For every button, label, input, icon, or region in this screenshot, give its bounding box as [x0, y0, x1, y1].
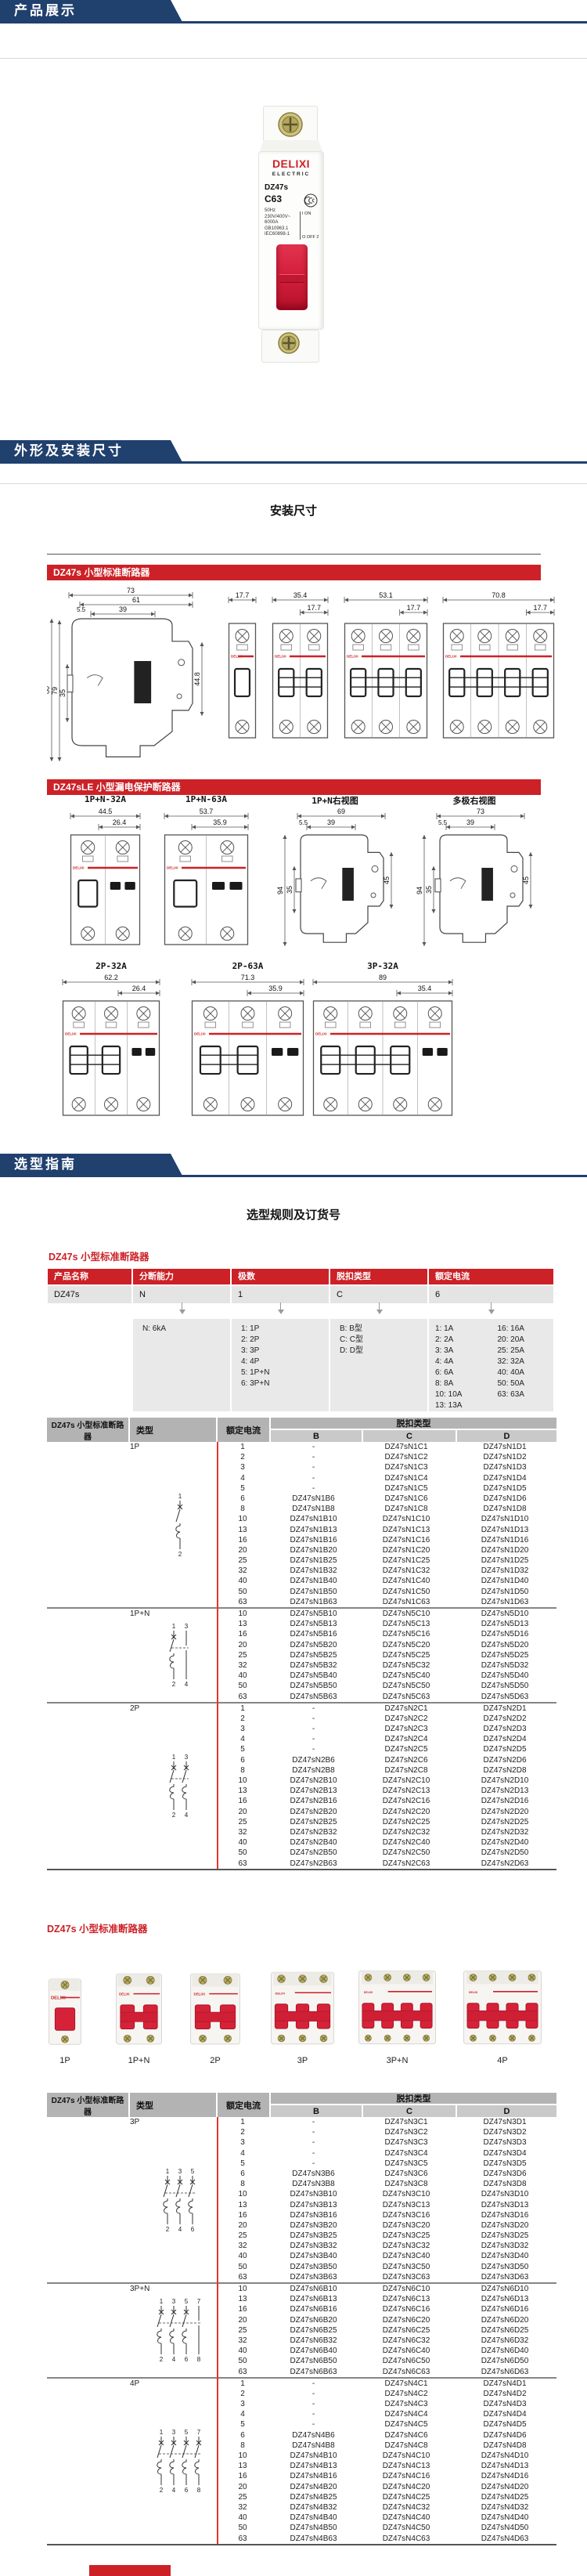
order-row: 8DZ47sN1B8DZ47sN1C8DZ47sN1D8: [218, 1504, 556, 1514]
order-row: 2-DZ47sN2C2DZ47sN2D2: [218, 1714, 556, 1724]
model-d: DZ47sN4D10: [453, 2451, 556, 2461]
svg-text:71.3: 71.3: [241, 974, 255, 981]
svg-text:8: 8: [197, 2487, 201, 2494]
svg-text:62.2: 62.2: [104, 974, 118, 981]
list-item: 6: 3P+N: [232, 1378, 329, 1389]
model-b: DZ47sN1B32: [268, 1566, 359, 1576]
order-row: 13DZ47sN1B13DZ47sN1C13DZ47sN1D13: [218, 1525, 556, 1535]
svg-text:DELIXI: DELIXI: [65, 1032, 77, 1036]
model-c: DZ47sN4C13: [359, 2461, 453, 2471]
next-section-banner-fragment: [89, 2565, 171, 2576]
rated-current: 4: [218, 2409, 268, 2419]
svg-text:DELIXI: DELIXI: [275, 1992, 285, 1995]
model-d: DZ47sN5D50: [453, 1681, 556, 1691]
model-c: DZ47sN3C3: [359, 2137, 453, 2148]
order-row: 50DZ47sN6B50DZ47sN6C50DZ47sN6D50: [218, 2356, 556, 2366]
rated-current: 1: [218, 1703, 268, 1714]
model-b: -: [268, 1724, 359, 1734]
model-d: DZ47sN3D3: [453, 2137, 556, 2148]
order-row: 6DZ47sN1B6DZ47sN1C6DZ47sN1D6: [218, 1494, 556, 1504]
model-d: DZ47sN1D20: [453, 1545, 556, 1555]
model-b: DZ47sN6B16: [268, 2304, 359, 2314]
list-item: D: D型: [330, 1346, 427, 1357]
order-row: 63DZ47sN1B63DZ47sN1C63DZ47sN1D63: [218, 1597, 556, 1607]
list-item: 2: 2A: [429, 1335, 492, 1346]
model-b: DZ47sN5B63: [268, 1692, 359, 1702]
model-b: -: [268, 1744, 359, 1754]
model-d: DZ47sN6D63: [453, 2367, 556, 2377]
model-d: DZ47sN3D2: [453, 2127, 556, 2137]
rated-current: 16: [218, 1796, 268, 1806]
svg-text:45: 45: [522, 876, 530, 884]
rated-current: 5: [218, 1744, 268, 1754]
model-c: DZ47sN5C50: [359, 1681, 453, 1691]
model-b: DZ47sN6B32: [268, 2336, 359, 2346]
order-section-2P: 2P12341-DZ47sN2C1DZ47sN2D12-DZ47sN2C2DZ4…: [47, 1702, 556, 1869]
model-c: DZ47sN3C32: [359, 2241, 453, 2251]
rated-current: 10: [218, 1514, 268, 1524]
svg-text:DELIXI: DELIXI: [167, 866, 178, 870]
model-c: DZ47sN4C25: [359, 2492, 453, 2502]
order-row: 16DZ47sN6B16DZ47sN6C16DZ47sN6D16: [218, 2304, 556, 2314]
model-c: DZ47sN2C10: [359, 1776, 453, 1786]
dz47sle-drawing-banner: DZ47sLE 小型漏电保护断路器: [47, 779, 541, 795]
rule-value-breaking-capacity: N: [133, 1286, 230, 1303]
order-row: 13DZ47sN5B13DZ47sN5C13DZ47sN5D13: [218, 1619, 556, 1629]
terminal-screw-icon: [264, 107, 317, 141]
order-col-b: B: [271, 1430, 362, 1442]
divider: [0, 58, 587, 59]
rated-current: 10: [218, 1609, 268, 1619]
rule-header-trip-type: 脱扣类型: [330, 1269, 427, 1284]
rated-current: 4: [218, 2148, 268, 2159]
order-row: 6DZ47sN4B6DZ47sN4C6DZ47sN4D6: [218, 2430, 556, 2441]
order-row: 1-DZ47sN2C1DZ47sN2D1: [218, 1703, 556, 1714]
svg-text:DELIXI: DELIXI: [315, 1032, 327, 1036]
svg-text:6: 6: [185, 2487, 189, 2494]
arrow-down-icon: [280, 1302, 281, 1313]
model-b: -: [268, 2137, 359, 2148]
rated-current: 10: [218, 2284, 268, 2294]
order-section-3P: 3P1234561-DZ47sN3C1DZ47sN3D12-DZ47sN3C2D…: [47, 2117, 556, 2282]
rated-current: 50: [218, 2356, 268, 2366]
dz47s-drawing-banner: DZ47s 小型标准断路器: [47, 565, 541, 580]
model-c: DZ47sN5C25: [359, 1650, 453, 1660]
svg-text:35: 35: [425, 886, 433, 894]
model-c: DZ47sN4C6: [359, 2430, 453, 2441]
model-b: DZ47sN2B50: [268, 1848, 359, 1858]
model-b: DZ47sN3B40: [268, 2251, 359, 2261]
rated-current: 25: [218, 1650, 268, 1660]
model-d: DZ47sN2D13: [453, 1786, 556, 1796]
svg-text:1: 1: [172, 1754, 176, 1761]
model-c: DZ47sN4C1: [359, 2379, 453, 2389]
model-d: DZ47sN2D10: [453, 1776, 556, 1786]
type-cell: 3P123456: [47, 2117, 218, 2282]
type-label: 4P: [130, 2379, 139, 2388]
model-b: DZ47sN2B32: [268, 1827, 359, 1837]
rated-current: 13: [218, 2461, 268, 2471]
rule-value-rated-current: 6: [429, 1286, 553, 1303]
drawing-label: 1P+N右视图: [282, 794, 388, 807]
order-row: 50DZ47sN1B50DZ47sN1C50DZ47sN1D50: [218, 1587, 556, 1597]
model-d: DZ47sN6D10: [453, 2284, 556, 2294]
list-item: 4: 4P: [232, 1357, 329, 1367]
rated-current: 40: [218, 1837, 268, 1848]
order-table-header: DZ47s 小型标准断路器类型额定电流脱扣类型BCD: [47, 1418, 556, 1442]
order-row: 16DZ47sN5B16DZ47sN5C16DZ47sN5D16: [218, 1629, 556, 1639]
svg-text:2: 2: [160, 2356, 164, 2363]
svg-text:2: 2: [178, 1551, 182, 1558]
list-item: C: C型: [330, 1335, 427, 1346]
model-c: DZ47sN3C8: [359, 2179, 453, 2189]
model-d: DZ47sN3D25: [453, 2231, 556, 2241]
model-d: DZ47sN1D8: [453, 1504, 556, 1514]
model-c: DZ47sN5C13: [359, 1619, 453, 1629]
model-b: DZ47sN3B50: [268, 2262, 359, 2272]
model-b: DZ47sN1B25: [268, 1555, 359, 1566]
model-c: DZ47sN6C16: [359, 2304, 453, 2314]
order-row: 63DZ47sN2B63DZ47sN2C63DZ47sN2D63: [218, 1859, 556, 1869]
rated-current: 40: [218, 1671, 268, 1681]
rated-current: 63: [218, 1692, 268, 1702]
rated-current: 5: [218, 2419, 268, 2430]
model-d: DZ47sN3D16: [453, 2210, 556, 2220]
model-c: DZ47sN2C5: [359, 1744, 453, 1754]
svg-text:53.1: 53.1: [379, 591, 393, 599]
model-c: DZ47sN2C63: [359, 1859, 453, 1869]
order-row: 8DZ47sN2B8DZ47sN2C8DZ47sN2D8: [218, 1765, 556, 1776]
svg-text:35: 35: [286, 886, 293, 894]
list-item: 3: 3A: [429, 1346, 492, 1357]
svg-text:7: 7: [197, 2429, 201, 2436]
order-section-1P+N: 1P+N123410DZ47sN5B10DZ47sN5C10DZ47sN5D10…: [47, 1607, 556, 1702]
model-b: DZ47sN1B10: [268, 1514, 359, 1524]
svg-text:DELIXI: DELIXI: [194, 1032, 206, 1036]
model-b: DZ47sN6B25: [268, 2325, 359, 2336]
model-d: DZ47sN3D13: [453, 2200, 556, 2210]
order-row: 40DZ47sN6B40DZ47sN6C40DZ47sN6D40: [218, 2346, 556, 2356]
rated-current: 25: [218, 1555, 268, 1566]
list-item: 10: 10A: [429, 1389, 492, 1400]
order-row: 63DZ47sN6B63DZ47sN6C63DZ47sN6D63: [218, 2367, 556, 2377]
section-banner-products: 产品展示: [0, 0, 587, 23]
svg-text:44.5: 44.5: [99, 807, 113, 815]
model-d: DZ47sN5D40: [453, 1671, 556, 1681]
breaker-photo: DELIXI: [190, 1969, 240, 2049]
order-row: 13DZ47sN3B13DZ47sN3C13DZ47sN3D13: [218, 2200, 556, 2210]
model-d: DZ47sN4D25: [453, 2492, 556, 2502]
model-d: DZ47sN5D20: [453, 1640, 556, 1650]
rated-current: 20: [218, 2482, 268, 2492]
model-d: DZ47sN3D1: [453, 2117, 556, 2127]
svg-text:73: 73: [477, 807, 484, 815]
model-c: DZ47sN2C32: [359, 1827, 453, 1837]
model-d: DZ47sN2D63: [453, 1859, 556, 1869]
model-c: DZ47sN2C6: [359, 1755, 453, 1765]
order-row: 4-DZ47sN2C4DZ47sN2D4: [218, 1734, 556, 1744]
order-row: 50DZ47sN4B50DZ47sN4C50DZ47sN4D50: [218, 2523, 556, 2533]
rated-current: 2: [218, 1452, 268, 1462]
order-row: 40DZ47sN5B40DZ47sN5C40DZ47sN5D40: [218, 1671, 556, 1681]
order-row: 13DZ47sN6B13DZ47sN6C13DZ47sN6D13: [218, 2294, 556, 2304]
rated-current: 32: [218, 2502, 268, 2513]
model-c: DZ47sN3C13: [359, 2200, 453, 2210]
svg-text:5: 5: [191, 2168, 195, 2175]
red-divider-line: [217, 1442, 218, 1869]
model-b: DZ47sN5B20: [268, 1640, 359, 1650]
model-c: DZ47sN3C16: [359, 2210, 453, 2220]
model-c: DZ47sN2C1: [359, 1703, 453, 1714]
order-col-type: 类型: [130, 2093, 216, 2117]
model-d: DZ47sN3D5: [453, 2159, 556, 2169]
type-label: 3P+N: [130, 2285, 149, 2293]
svg-text:5.5: 5.5: [77, 606, 86, 613]
svg-text:1: 1: [178, 1493, 182, 1500]
model-c: DZ47sN2C4: [359, 1734, 453, 1744]
rated-current: 10: [218, 2451, 268, 2461]
order-row: 25DZ47sN5B25DZ47sN5C25DZ47sN5D25: [218, 1650, 556, 1660]
order-col-product: DZ47s 小型标准断路器: [47, 1418, 128, 1442]
order-row: 1-DZ47sN4C1DZ47sN4D1: [218, 2379, 556, 2389]
order-col-product: DZ47s 小型标准断路器: [47, 2093, 128, 2117]
section-title-dimensions: 外形及安装尺寸: [14, 440, 124, 464]
model-c: DZ47sN6C40: [359, 2346, 453, 2356]
svg-text:94: 94: [416, 887, 423, 894]
rated-current: 4: [218, 1473, 268, 1483]
list-item: 4: 4A: [429, 1357, 492, 1367]
pole-circuit-symbol: 1234: [164, 1622, 196, 1688]
rated-current: 63: [218, 2272, 268, 2282]
order-row: 3-DZ47sN4C3DZ47sN4D3: [218, 2399, 556, 2409]
model-b: -: [268, 1473, 359, 1483]
model-d: DZ47sN1D3: [453, 1462, 556, 1472]
model-c: DZ47sN4C4: [359, 2409, 453, 2419]
order-row: 25DZ47sN1B25DZ47sN1C25DZ47sN1D25: [218, 1555, 556, 1566]
list-item: 1: 1A: [429, 1324, 492, 1335]
svg-text:73: 73: [127, 587, 135, 594]
order-row: 5-DZ47sN2C5DZ47sN2D5: [218, 1744, 556, 1754]
model-d: DZ47sN2D8: [453, 1765, 556, 1776]
model-d: DZ47sN2D3: [453, 1724, 556, 1734]
breaker-photo: DELIXI: [358, 1966, 436, 2049]
current-codes: 1: 1A2: 2A3: 3A4: 4A6: 6A8: 8A10: 10A13:…: [429, 1319, 553, 1411]
model-c: DZ47sN3C4: [359, 2148, 453, 2159]
list-item: 16: 16A: [492, 1324, 554, 1335]
order-row: 25DZ47sN6B25DZ47sN6C25DZ47sN6D25: [218, 2325, 556, 2336]
order-row: 2-DZ47sN4C2DZ47sN4D2: [218, 2389, 556, 2399]
rated-current: 40: [218, 2346, 268, 2356]
rule-value-trip-type: C: [330, 1286, 427, 1303]
model-c: DZ47sN3C2: [359, 2127, 453, 2137]
model-b: DZ47sN4B50: [268, 2523, 359, 2533]
rated-current: 4: [218, 1734, 268, 1744]
rated-current: 20: [218, 2315, 268, 2325]
rule-header-poles: 极数: [232, 1269, 329, 1284]
gallery-item-label: 3P: [271, 2056, 334, 2065]
dz47sle-dimension-drawings-row1: 44.526.4DELIXI53.735.9DELIXI695.53994354…: [47, 807, 556, 952]
model-b: -: [268, 2148, 359, 2159]
order-row: 20DZ47sN1B20DZ47sN1C20DZ47sN1D20: [218, 1545, 556, 1555]
svg-text:61: 61: [132, 596, 140, 604]
order-row: 13DZ47sN4B13DZ47sN4C13DZ47sN4D13: [218, 2461, 556, 2471]
model-c: DZ47sN3C1: [359, 2117, 453, 2127]
order-row: 20DZ47sN5B20DZ47sN5C20DZ47sN5D20: [218, 1640, 556, 1650]
model-c: DZ47sN2C8: [359, 1765, 453, 1776]
gallery-item-label: 4P: [463, 2056, 542, 2065]
order-row: 50DZ47sN5B50DZ47sN5C50DZ47sN5D50: [218, 1681, 556, 1691]
model-d: DZ47sN2D2: [453, 1714, 556, 1724]
rated-current: 13: [218, 1786, 268, 1796]
gallery-item-3P: DELIXI3P: [271, 1964, 334, 2065]
model-d: DZ47sN3D6: [453, 2169, 556, 2179]
model-d: DZ47sN4D5: [453, 2419, 556, 2430]
rated-current: 13: [218, 1619, 268, 1629]
svg-text:4: 4: [172, 2356, 176, 2363]
svg-text:45: 45: [383, 876, 391, 884]
order-row: 4-DZ47sN3C4DZ47sN3D4: [218, 2148, 556, 2159]
model-b: DZ47sN2B8: [268, 1765, 359, 1776]
model-d: DZ47sN1D40: [453, 1576, 556, 1586]
rated-current: 20: [218, 1807, 268, 1817]
model-d: DZ47sN6D32: [453, 2336, 556, 2346]
model-d: DZ47sN2D5: [453, 1744, 556, 1754]
order-col-c: C: [363, 1430, 456, 1442]
model-c: DZ47sN6C20: [359, 2315, 453, 2325]
rated-current: 20: [218, 1545, 268, 1555]
curve-rating-label: C63: [265, 193, 282, 204]
model-c: DZ47sN3C6: [359, 2169, 453, 2179]
model-b: DZ47sN6B63: [268, 2367, 359, 2377]
rated-current: 20: [218, 2220, 268, 2231]
svg-text:26.4: 26.4: [132, 985, 146, 992]
model-c: DZ47sN1C25: [359, 1555, 453, 1566]
model-c: DZ47sN4C3: [359, 2399, 453, 2409]
type-label: 2P: [130, 1704, 139, 1713]
order-section-3P+N: 3P+N1234567810DZ47sN6B10DZ47sN6C10DZ47sN…: [47, 2282, 556, 2377]
order-col-d: D: [457, 2105, 556, 2117]
rated-current: 1: [218, 1442, 268, 1452]
order-row: 5-DZ47sN1C5DZ47sN1D5: [218, 1483, 556, 1494]
svg-text:94: 94: [276, 887, 284, 894]
list-item: 3: 3P: [232, 1346, 329, 1357]
bottom-terminal: [261, 330, 319, 363]
model-c: DZ47sN2C3: [359, 1724, 453, 1734]
model-b: DZ47sN4B10: [268, 2451, 359, 2461]
rated-current: 6: [218, 2169, 268, 2179]
rated-current: 25: [218, 2325, 268, 2336]
order-row: 40DZ47sN2B40DZ47sN2C40DZ47sN2D40: [218, 1837, 556, 1848]
list-item: 50: 50A: [492, 1378, 554, 1389]
model-b: -: [268, 2379, 359, 2389]
model-d: DZ47sN5D16: [453, 1629, 556, 1639]
order-col-current: 额定电流: [218, 1418, 269, 1442]
rated-current: 25: [218, 2231, 268, 2241]
section-title-products: 产品展示: [14, 0, 77, 23]
model-c: DZ47sN4C5: [359, 2419, 453, 2430]
model-c: DZ47sN3C40: [359, 2251, 453, 2261]
pole-circuit-symbol: 123456: [157, 2167, 203, 2233]
list-item: 63: 63A: [492, 1389, 554, 1400]
model-b: DZ47sN4B6: [268, 2430, 359, 2441]
model-d: DZ47sN1D2: [453, 1452, 556, 1462]
section-banner-selection: 选型指南: [0, 1154, 587, 1177]
svg-text:DELIXI: DELIXI: [364, 1991, 373, 1994]
svg-text:69: 69: [337, 807, 345, 815]
on-label: I ON: [302, 211, 321, 216]
model-b: DZ47sN4B25: [268, 2492, 359, 2502]
model-b: -: [268, 1462, 359, 1472]
model-d: DZ47sN4D32: [453, 2502, 556, 2513]
model-c: DZ47sN5C40: [359, 1671, 453, 1681]
rated-current: 20: [218, 1640, 268, 1650]
rule-value-product-name: DZ47s: [48, 1286, 131, 1303]
rated-current: 50: [218, 1848, 268, 1858]
model-b: DZ47sN1B63: [268, 1597, 359, 1607]
order-row: 2-DZ47sN1C2DZ47sN1D2: [218, 1452, 556, 1462]
model-b: DZ47sN5B25: [268, 1650, 359, 1660]
order-row: 63DZ47sN5B63DZ47sN5C63DZ47sN5D63: [218, 1692, 556, 1702]
rule-header-product-name: 产品名称: [48, 1269, 131, 1284]
model-b: -: [268, 2419, 359, 2430]
gallery-item-1P+N: DELIXI1P+N: [116, 1964, 162, 2065]
svg-text:DELIXI: DELIXI: [51, 1996, 66, 2000]
list-item: 40: 40A: [492, 1367, 554, 1378]
rated-current: 16: [218, 2471, 268, 2481]
drawing-label: 多极右视图: [421, 794, 528, 807]
rated-current: 50: [218, 2523, 268, 2533]
svg-text:3: 3: [172, 2429, 176, 2436]
rated-current: 10: [218, 1776, 268, 1786]
order-col-trip: 脱扣类型: [271, 1418, 556, 1429]
gallery-item-3P+N: DELIXI3P+N: [358, 1964, 436, 2065]
gallery-title: DZ47s 小型标准断路器: [47, 1920, 148, 1935]
model-c: DZ47sN6C50: [359, 2356, 453, 2366]
order-row: 10DZ47sN3B10DZ47sN3C10DZ47sN3D10: [218, 2189, 556, 2199]
rated-current: 1: [218, 2379, 268, 2389]
model-c: DZ47sN4C20: [359, 2482, 453, 2492]
order-row: 20DZ47sN3B20DZ47sN3C20DZ47sN3D20: [218, 2220, 556, 2231]
model-d: DZ47sN6D25: [453, 2325, 556, 2336]
model-b: DZ47sN4B8: [268, 2441, 359, 2451]
model-c: DZ47sN1C63: [359, 1597, 453, 1607]
rated-current: 1: [218, 2117, 268, 2127]
svg-text:5: 5: [185, 2298, 189, 2305]
rated-current: 8: [218, 2441, 268, 2451]
gallery-item-label: 1P+N: [116, 2056, 162, 2065]
svg-text:DELIXI: DELIXI: [469, 1991, 477, 1994]
svg-text:5: 5: [185, 2429, 189, 2436]
pole-codes: 1: 1P2: 2P3: 3P4: 4P5: 1P+N6: 3P+N: [232, 1319, 329, 1411]
model-b: DZ47sN3B25: [268, 2231, 359, 2241]
model-b: DZ47sN1B6: [268, 1494, 359, 1504]
model-d: DZ47sN1D4: [453, 1473, 556, 1483]
order-row: 13DZ47sN2B13DZ47sN2C13DZ47sN2D13: [218, 1786, 556, 1796]
model-d: DZ47sN1D25: [453, 1555, 556, 1566]
order-row: 2-DZ47sN3C2DZ47sN3D2: [218, 2127, 556, 2137]
toggle-handle: [276, 244, 308, 310]
svg-text:2: 2: [172, 1681, 176, 1688]
order-row: 4-DZ47sN4C4DZ47sN4D4: [218, 2409, 556, 2419]
model-c: DZ47sN4C63: [359, 2534, 453, 2544]
arrow-down-icon: [182, 1302, 182, 1313]
model-d: DZ47sN1D5: [453, 1483, 556, 1494]
svg-text:6: 6: [191, 2226, 195, 2233]
rated-current: 13: [218, 2200, 268, 2210]
svg-text:DELIXI: DELIXI: [193, 1993, 204, 1996]
list-item: 2: 2P: [232, 1335, 329, 1346]
section-banner-dimensions: 外形及安装尺寸: [0, 440, 587, 464]
